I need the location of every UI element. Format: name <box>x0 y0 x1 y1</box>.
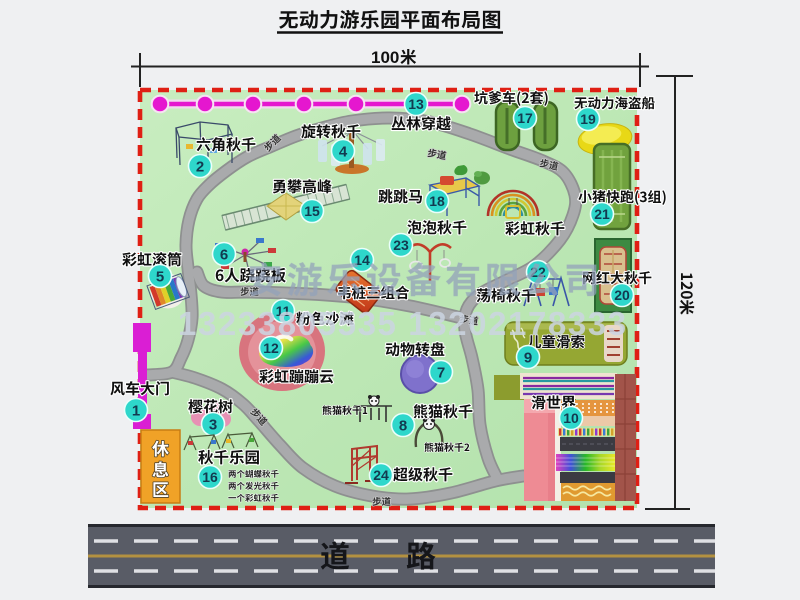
svg-text:10: 10 <box>563 410 579 426</box>
svg-text:12: 12 <box>263 340 279 356</box>
svg-text:8: 8 <box>399 417 407 434</box>
svg-text:13233805535 13202178333: 13233805535 13202178333 <box>178 305 628 342</box>
svg-text:17: 17 <box>517 110 533 126</box>
svg-text:15: 15 <box>304 203 320 219</box>
svg-text:1: 1 <box>132 402 140 419</box>
svg-text:24: 24 <box>373 467 389 483</box>
svg-text:6: 6 <box>220 246 228 263</box>
svg-text:19: 19 <box>580 111 596 127</box>
svg-text:23: 23 <box>393 237 409 253</box>
svg-text:7: 7 <box>437 364 445 381</box>
svg-text:13: 13 <box>408 96 424 112</box>
svg-text:4: 4 <box>339 143 348 160</box>
svg-text:21: 21 <box>594 206 610 222</box>
svg-text:2: 2 <box>196 158 204 175</box>
svg-text:100: 100 <box>371 48 399 67</box>
svg-text:16: 16 <box>202 469 218 485</box>
svg-text:9: 9 <box>524 349 532 366</box>
svg-text:20: 20 <box>614 287 630 303</box>
svg-text:3: 3 <box>209 416 217 433</box>
svg-text:18: 18 <box>429 193 445 209</box>
svg-text:5: 5 <box>156 268 164 285</box>
